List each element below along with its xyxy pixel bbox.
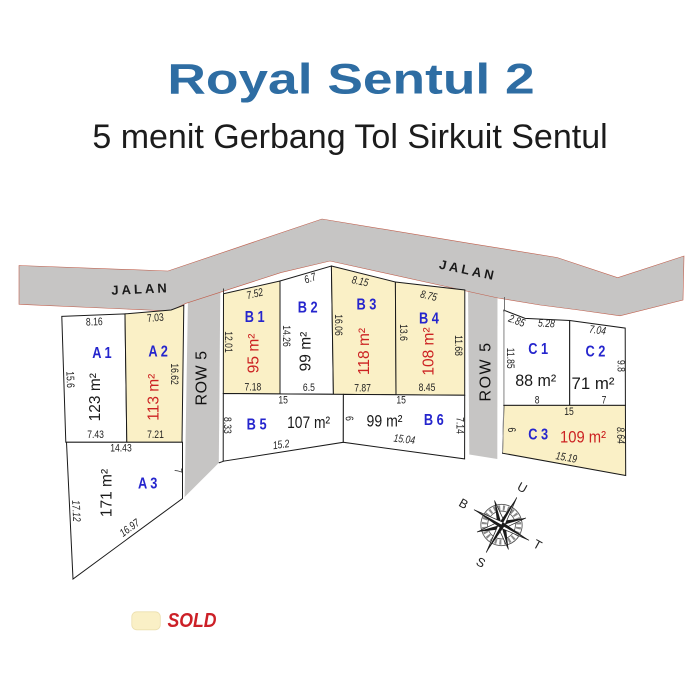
svg-text:A 3: A 3 xyxy=(138,475,157,493)
svg-text:15: 15 xyxy=(396,395,406,407)
svg-text:8: 8 xyxy=(535,395,540,407)
svg-text:8.45: 8.45 xyxy=(419,382,436,394)
svg-text:SOLD: SOLD xyxy=(168,610,217,632)
svg-text:99 m²: 99 m² xyxy=(367,413,403,431)
svg-text:A 1: A 1 xyxy=(92,345,111,363)
svg-text:109 m²: 109 m² xyxy=(560,428,606,446)
svg-text:5.28: 5.28 xyxy=(538,318,556,331)
svg-text:ROW 5: ROW 5 xyxy=(193,351,210,406)
svg-text:17.12: 17.12 xyxy=(69,500,82,523)
svg-text:15: 15 xyxy=(564,406,574,418)
svg-text:16.06: 16.06 xyxy=(332,314,344,336)
svg-text:7.21: 7.21 xyxy=(147,429,164,441)
svg-text:7.03: 7.03 xyxy=(147,312,165,326)
svg-text:B 6: B 6 xyxy=(424,412,444,430)
svg-text:71 m²: 71 m² xyxy=(572,375,616,393)
svg-text:B 1: B 1 xyxy=(245,309,265,327)
svg-text:B 2: B 2 xyxy=(298,299,318,317)
svg-text:ROW 5: ROW 5 xyxy=(478,342,495,402)
svg-text:13.6: 13.6 xyxy=(397,324,409,341)
svg-text:99 m²: 99 m² xyxy=(297,332,314,372)
svg-text:8.33: 8.33 xyxy=(221,417,233,434)
svg-text:S: S xyxy=(474,554,488,570)
svg-text:B 5: B 5 xyxy=(247,416,267,434)
svg-text:JALAN: JALAN xyxy=(111,280,170,298)
svg-text:108 m²: 108 m² xyxy=(420,327,437,375)
svg-text:88 m²: 88 m² xyxy=(515,372,556,390)
svg-text:8.16: 8.16 xyxy=(86,316,104,329)
svg-text:171 m²: 171 m² xyxy=(99,469,116,517)
svg-text:9.8: 9.8 xyxy=(614,360,626,372)
svg-text:16.62: 16.62 xyxy=(168,363,180,384)
svg-text:113 m²: 113 m² xyxy=(146,374,163,421)
svg-text:123 m²: 123 m² xyxy=(87,373,104,421)
svg-text:7.18: 7.18 xyxy=(245,381,262,393)
svg-text:B 3: B 3 xyxy=(356,296,376,314)
svg-text:14.43: 14.43 xyxy=(110,442,132,454)
svg-text:107 m²: 107 m² xyxy=(287,414,330,432)
svg-text:15.19: 15.19 xyxy=(555,450,579,466)
svg-text:118 m²: 118 m² xyxy=(356,328,373,375)
svg-text:Royal Sentul 2: Royal Sentul 2 xyxy=(167,55,534,103)
svg-text:15.6: 15.6 xyxy=(63,371,76,389)
svg-text:7.43: 7.43 xyxy=(87,429,104,441)
svg-text:5 menit Gerbang Tol Sirkuit Se: 5 menit Gerbang Tol Sirkuit Sentul xyxy=(92,118,607,156)
svg-text:7: 7 xyxy=(602,395,607,407)
svg-text:B: B xyxy=(456,496,470,512)
svg-text:11.68: 11.68 xyxy=(452,335,464,356)
svg-text:15: 15 xyxy=(278,395,288,407)
svg-text:11.85: 11.85 xyxy=(504,348,516,369)
svg-text:12.01: 12.01 xyxy=(222,331,234,352)
svg-text:7.87: 7.87 xyxy=(354,382,371,394)
svg-text:C 3: C 3 xyxy=(528,426,548,444)
svg-text:7.04: 7.04 xyxy=(588,324,607,338)
svg-text:8.64: 8.64 xyxy=(614,427,627,445)
svg-text:15.2: 15.2 xyxy=(272,438,291,453)
svg-text:C 2: C 2 xyxy=(585,343,605,361)
svg-text:6.5: 6.5 xyxy=(303,382,315,394)
svg-text:C 1: C 1 xyxy=(528,341,548,359)
svg-text:B 4: B 4 xyxy=(419,310,439,328)
svg-text:A 2: A 2 xyxy=(148,343,167,361)
svg-text:U: U xyxy=(515,480,530,497)
svg-text:95 m²: 95 m² xyxy=(246,334,263,374)
svg-text:7.14: 7.14 xyxy=(453,417,465,434)
svg-text:14.26: 14.26 xyxy=(280,325,292,347)
svg-text:T: T xyxy=(531,537,545,553)
